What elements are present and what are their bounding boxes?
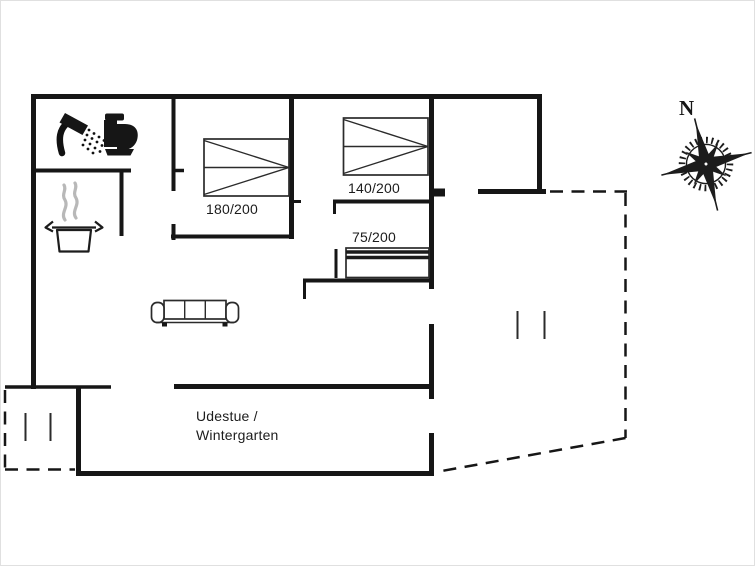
sofa-icon [152, 301, 239, 327]
compass-rose-icon [650, 107, 755, 222]
terrace-outline-dashed [439, 192, 627, 472]
bed-140x200-label: 140/200 [348, 179, 400, 198]
floor-plan: 180/200 140/200 75/200 Udestue / Winterg… [0, 0, 755, 566]
window-marks [26, 311, 545, 441]
floor-plan-drawing [1, 1, 755, 566]
cooking-pot-icon [46, 222, 103, 252]
double-bed-140x200-icon [344, 118, 429, 175]
steam-icon [63, 183, 77, 220]
bed-75x200-label: 75/200 [352, 228, 396, 247]
toilet-icon [104, 114, 138, 156]
double-bed-180x200-icon [204, 139, 289, 196]
conservatory-label: Udestue / Wintergarten [196, 407, 279, 444]
conservatory-label-line1: Udestue / [196, 407, 279, 426]
single-bed-75x200-icon [346, 248, 429, 278]
shower-icon [60, 113, 106, 154]
north-label: N [679, 96, 694, 121]
porch-outline-dashed [5, 390, 75, 470]
conservatory-label-line2: Wintergarten [196, 426, 279, 445]
bed-180x200-label: 180/200 [206, 200, 258, 219]
